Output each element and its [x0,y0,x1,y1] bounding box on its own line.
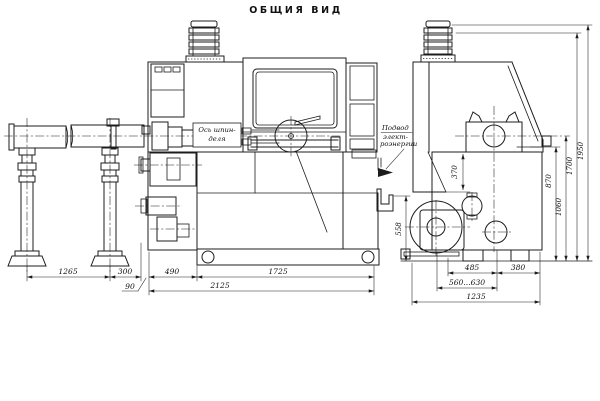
control-panel [151,64,184,117]
spindle-axis-label: Ось шпин- деля [193,123,241,147]
power-label-text-1: Подвод [381,124,409,132]
clamp-claw-right [506,112,519,122]
machine-foot-left [463,250,483,261]
power-supply-label: Подвод элект- роэнергии [380,124,417,169]
dim-558: 558 [394,222,403,236]
machine-foot-right [511,250,529,261]
flanged-port [462,193,482,219]
dim-90: 90 [125,282,135,291]
dimensions: 1265 300 490 1725 2125 90 558 370 870 10… [27,25,592,305]
cabinet-door-panels [350,66,376,158]
dim-370: 370 [450,165,459,179]
machine-body [148,58,378,250]
base-hole-right [362,251,374,263]
panel-button-3 [173,67,180,72]
end-chimney [421,21,455,62]
end-view [401,21,592,261]
panel-button-1 [155,67,162,72]
clamp-claw-left [469,112,482,122]
chip-chute [377,189,393,211]
dim-1060: 1060 [554,197,563,216]
dim-1265: 1265 [58,267,77,276]
bar-feed-tube [9,124,144,150]
sloped-guard [512,62,543,140]
power-connection [378,158,393,177]
dim-560-630: 560...630 [449,278,485,287]
exhaust-chimney [186,21,224,62]
drawing-title: ОБЩИЯ ВИД [249,5,343,16]
machine-base [197,249,379,265]
spindle-axis-text-2: деля [208,135,226,143]
base-hole-left [202,251,214,263]
dim-1950: 1950 [576,141,585,160]
dim-485: 485 [464,263,480,272]
dim-2125: 2125 [209,281,229,290]
side-view: Ось шпин- деля [4,21,393,272]
dim-490: 490 [164,267,180,276]
panel-button-2 [164,67,171,72]
dim-1700: 1700 [565,156,574,175]
spindle-axis-text-1: Ось шпин- [198,126,236,134]
technical-drawing: ОБЩИЯ ВИД [0,0,600,401]
end-lower-body [432,152,542,250]
dim-1725: 1725 [268,267,287,276]
drawing-sheet: ОБЩИЯ ВИД [0,0,600,401]
end-body [401,62,551,261]
power-flag-icon [378,168,393,177]
dim-380: 380 [511,263,526,272]
side-attachments [134,153,202,241]
power-label-text-3: роэнергии [380,140,417,148]
guide-rail [248,137,340,150]
lower-body [197,152,343,249]
handwheel [275,116,327,232]
viewing-window [243,69,346,132]
dim-1235: 1235 [466,292,485,301]
dim-870: 870 [544,174,553,188]
window-handle [295,116,320,122]
dim-300: 300 [118,267,133,276]
